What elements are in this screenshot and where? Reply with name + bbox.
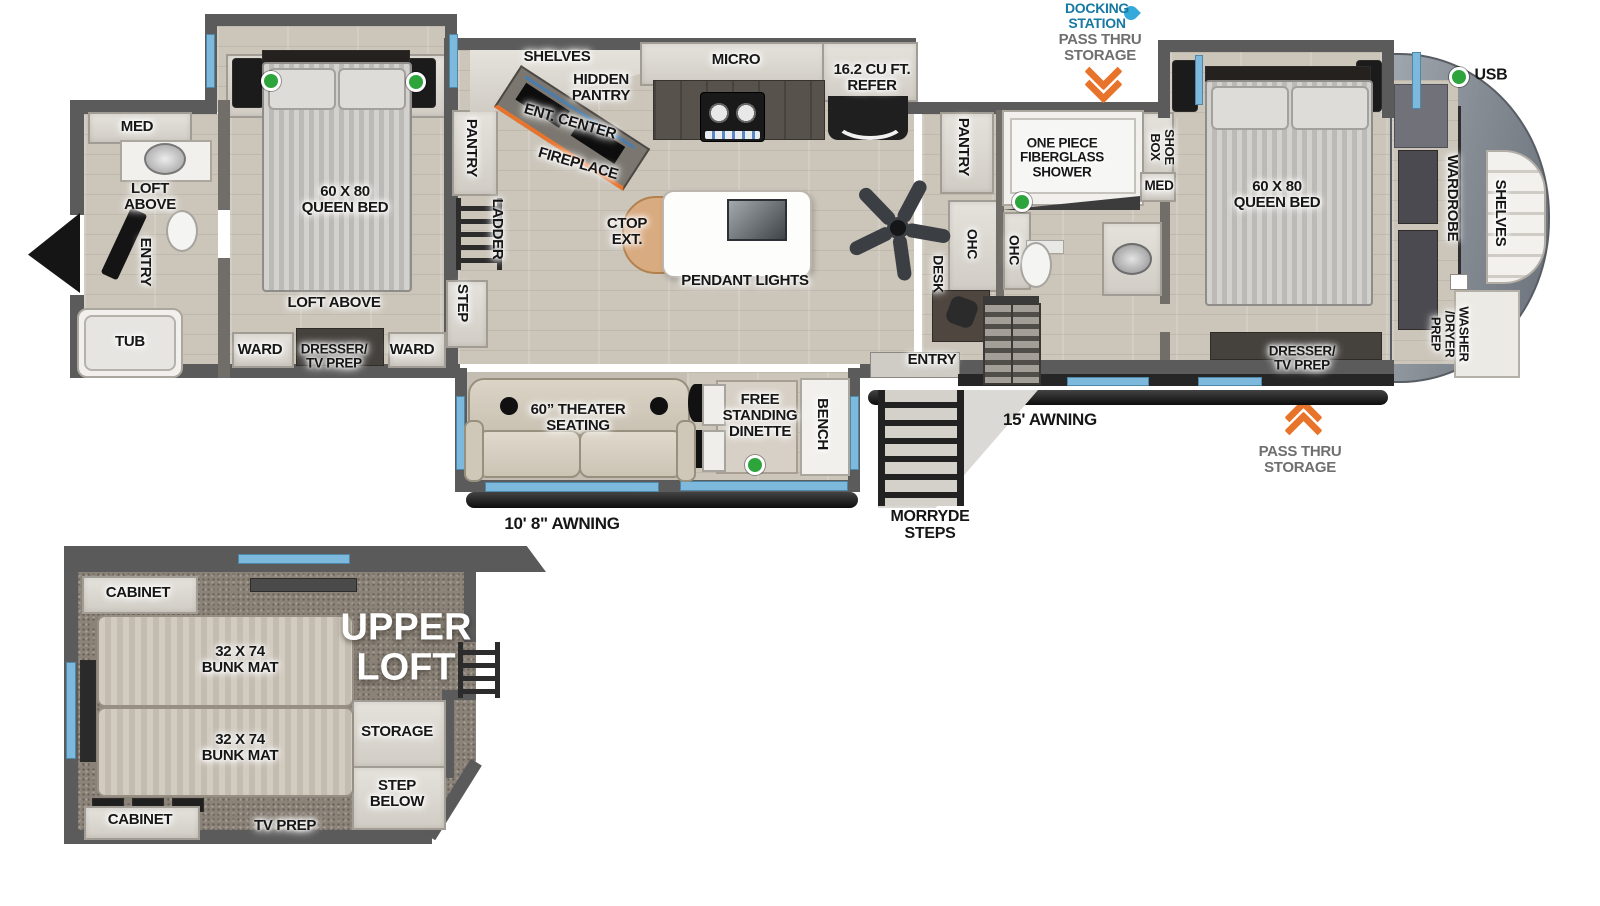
rear-entry-steps — [28, 213, 80, 293]
pillow — [338, 68, 406, 110]
usb-indicator-dot — [261, 71, 281, 91]
interior-stairs — [983, 303, 1013, 385]
morryde-steps — [878, 390, 964, 506]
label-hidden-pantry: HIDDEN PANTRY — [572, 72, 630, 104]
label-dresser-rear: DRESSER/ TV PREP — [301, 343, 368, 372]
window — [449, 34, 458, 88]
label-dinette: FREE STANDING DINETTE — [723, 392, 798, 440]
wall — [1158, 40, 1394, 52]
wall — [218, 258, 230, 378]
label-tv-prep: TV PREP — [254, 818, 316, 834]
wall — [205, 14, 457, 26]
usb-indicator-dot — [1449, 67, 1469, 87]
toilet — [1020, 242, 1052, 288]
label-dresser-front: DRESSER/ TV PREP — [1269, 345, 1336, 374]
label-awning-15: 15' AWNING — [1003, 411, 1097, 429]
usb-indicator-dot — [745, 455, 765, 475]
label-mid-pantry: PANTRY — [955, 118, 971, 176]
label-theater-seating: 60” THEATER SEATING — [531, 402, 626, 434]
label-loft-storage: STORAGE — [361, 724, 433, 740]
cupholder — [500, 397, 518, 415]
label-front-queen-bed: 60 X 80 QUEEN BED — [1234, 179, 1320, 211]
label-rear-queen-bed: 60 X 80 QUEEN BED — [302, 184, 388, 216]
loft-window — [238, 554, 350, 564]
label-entry-rear: ENTRY — [137, 238, 153, 287]
stove — [700, 92, 765, 142]
usb-indicator-dot — [406, 72, 426, 92]
label-shelves-front: SHELVES — [1492, 180, 1508, 247]
window — [1198, 377, 1262, 386]
vanity-sink — [1112, 243, 1152, 275]
label-washer-dryer: WASHER /DRYER PREP — [1429, 306, 1470, 361]
label-loft-cabinet-top: CABINET — [106, 585, 171, 601]
slide-window-left — [232, 58, 264, 108]
label-pass-thru-bottom: PASS THRU STORAGE — [1259, 444, 1342, 476]
stove-front-panel — [705, 131, 760, 139]
window — [206, 34, 215, 88]
label-shower: ONE PIECE FIBERGLASS SHOWER — [1020, 137, 1104, 180]
rv-floorplan: MED LOFT ABOVE ENTRY TUB 60 X 80 QUEEN B… — [0, 0, 1600, 906]
label-med-mid: MED — [1144, 179, 1173, 193]
label-ward-right: WARD — [390, 342, 435, 358]
label-loft-cabinet-bottom: CABINET — [108, 812, 173, 828]
loft-window — [66, 662, 76, 759]
label-med-rear: MED — [121, 119, 153, 135]
label-shoe-box: SHOE BOX — [1148, 129, 1176, 165]
theater-armrest — [676, 420, 696, 482]
label-loft-above-bath: LOFT ABOVE — [124, 181, 176, 213]
label-ward-left: WARD — [238, 342, 283, 358]
cupholder — [650, 397, 668, 415]
front-closet-cabinet-mid — [1398, 150, 1438, 224]
pillow — [1291, 86, 1369, 130]
label-bench: BENCH — [814, 398, 830, 450]
label-loft-above-bedroom: LOFT ABOVE — [287, 295, 380, 311]
wall — [1160, 332, 1170, 362]
window — [1412, 52, 1421, 109]
refrigerator — [828, 96, 908, 140]
window — [1195, 55, 1203, 105]
label-ctop-ext: CTOP EXT. — [607, 216, 647, 248]
label-tub: TUB — [115, 334, 145, 350]
label-refer: 16.2 CU FT. REFER — [834, 62, 911, 94]
label-bunk-top: 32 X 74 BUNK MAT — [202, 644, 278, 676]
usb-indicator-dot — [1012, 192, 1032, 212]
label-ladder: LADDER — [489, 199, 505, 260]
label-shelves-kitchen: SHELVES — [524, 49, 591, 65]
label-usb: USB — [1475, 68, 1508, 85]
label-desk: DESK — [931, 255, 946, 293]
label-wardrobe: WARDROBE — [1444, 155, 1460, 242]
island-sink — [727, 199, 787, 241]
loft-tv — [80, 660, 96, 762]
window — [485, 482, 659, 492]
refrigerator-door-arc — [834, 102, 906, 140]
label-ohc-left: OHC — [965, 229, 980, 259]
label-upper-loft: UPPER LOFT — [341, 608, 472, 689]
wall — [218, 100, 230, 210]
wall — [70, 100, 84, 215]
label-docking-station: DOCKING STATION — [1065, 1, 1129, 31]
window — [850, 396, 859, 470]
pillow — [1211, 86, 1289, 130]
label-morryde-steps: MORRYDE STEPS — [890, 509, 969, 543]
label-step: STEP — [454, 284, 470, 322]
label-pass-thru-top: PASS THRU STORAGE — [1059, 32, 1142, 64]
interior-stairs — [1011, 303, 1041, 385]
front-closet-cabinet-top — [1394, 84, 1448, 148]
label-passage-pantry: PANTRY — [463, 119, 479, 177]
label-entry-main: ENTRY — [908, 352, 957, 368]
dinette-chair-back — [688, 384, 702, 422]
window — [680, 481, 848, 491]
wall — [1158, 40, 1170, 118]
theater-seat-cushion — [579, 430, 683, 478]
window — [1067, 377, 1149, 386]
wardrobe-door-handle — [1450, 274, 1468, 290]
label-ohc-right: OHC — [1007, 235, 1022, 265]
loft-headboard-shelf — [250, 578, 357, 592]
awning-10-bar — [466, 492, 858, 508]
label-bunk-bottom: 32 X 74 BUNK MAT — [202, 732, 278, 764]
label-step-below: STEP BELOW — [370, 778, 424, 810]
theater-seat-cushion — [477, 430, 581, 478]
label-pendant-lights: PENDANT LIGHTS — [681, 273, 808, 289]
label-micro: MICRO — [712, 52, 761, 68]
rear-bath-toilet — [166, 210, 198, 252]
theater-armrest — [464, 420, 484, 482]
wall — [1382, 40, 1394, 118]
label-awning-10: 10' 8" AWNING — [504, 515, 619, 533]
rear-bath-sink — [144, 143, 186, 175]
